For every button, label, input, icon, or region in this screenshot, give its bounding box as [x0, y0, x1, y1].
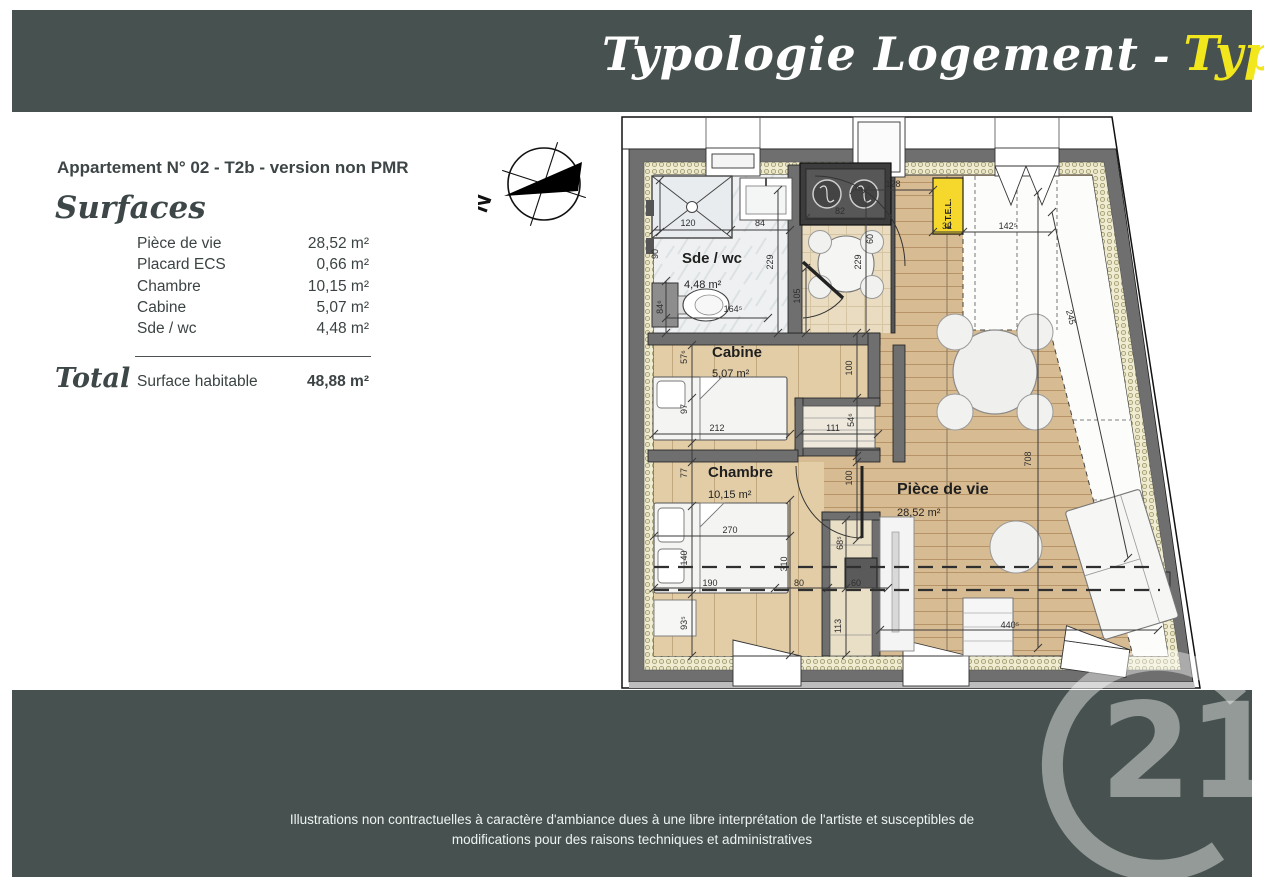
- room-area: 28,52 m²: [897, 507, 941, 519]
- table-row: Sde / wc 4,48 m²: [137, 318, 369, 339]
- chair: [861, 276, 884, 299]
- table-row: Pièce de vie 28,52 m²: [137, 233, 369, 254]
- table-row: Cabine 5,07 m²: [137, 297, 369, 318]
- row-value: 28,52 m²: [308, 233, 369, 254]
- total-heading: Total: [55, 363, 130, 394]
- pouf: [990, 521, 1042, 573]
- total-label: Surface habitable: [137, 373, 258, 391]
- pillow: [657, 381, 685, 408]
- title-main: Typologie Logement: [602, 27, 1139, 81]
- chair: [937, 394, 973, 430]
- dimension-label: 90: [650, 249, 660, 259]
- room-name: Sde / wc: [682, 250, 742, 267]
- dimension-label: 229: [765, 254, 775, 269]
- dimension-label: 93⁵: [679, 616, 689, 630]
- shower-valve: [646, 200, 654, 216]
- dimension-label: 60: [851, 578, 861, 588]
- dimension-label: 270: [722, 525, 737, 535]
- chair: [1017, 394, 1053, 430]
- dimension-label: 105: [792, 288, 802, 303]
- dimension-label: 310: [779, 556, 789, 571]
- disclaimer-text: Illustrations non contractuelles à carac…: [12, 810, 1252, 849]
- row-label: Chambre: [137, 276, 201, 297]
- page-title: Typologie Logement-Type 2b: [602, 26, 1264, 82]
- page: Typologie Logement-Type 2b Appartement N…: [0, 0, 1264, 891]
- window-bottom-1: [733, 656, 801, 686]
- table-row: Placard ECS 0,66 m²: [137, 254, 369, 275]
- dimension-label: 190: [702, 578, 717, 588]
- footer-band: Illustrations non contractuelles à carac…: [12, 690, 1252, 877]
- dimension-label: 77: [679, 468, 689, 478]
- dimension-label: 212: [709, 423, 724, 433]
- row-value: 0,66 m²: [316, 254, 369, 275]
- title-type-label: Type 2b: [1184, 26, 1264, 82]
- row-label: Sde / wc: [137, 318, 196, 339]
- row-value: 5,07 m²: [316, 297, 369, 318]
- nightstand: [654, 600, 696, 636]
- dimension-label: 142⁵: [999, 221, 1018, 231]
- dimension-label: 54⁶: [846, 413, 856, 427]
- room-name: Cabine: [712, 344, 762, 361]
- pillow: [658, 508, 684, 542]
- dimension-label: 32: [942, 221, 952, 231]
- surface-table: Pièce de vie 28,52 m² Placard ECS 0,66 m…: [137, 233, 369, 339]
- window-bottom-2: [903, 656, 969, 686]
- dimension-label: 68⁵: [835, 536, 845, 550]
- dimension-label: 82: [835, 206, 845, 216]
- dimension-label: 708: [1023, 451, 1033, 466]
- surfaces-heading: Surfaces: [55, 190, 206, 226]
- dimension-label: 84: [755, 218, 765, 228]
- row-value: 4,48 m²: [316, 318, 369, 339]
- dimension-label: 100: [844, 470, 854, 485]
- dimension-label: 111: [826, 423, 840, 433]
- dimension-label: 229: [853, 254, 863, 269]
- disclaimer-line: modifications pour des raisons technique…: [12, 830, 1252, 850]
- dimension-label: 97: [679, 404, 689, 414]
- dimension-label: 100: [844, 360, 854, 375]
- floor-plan: E.T.E.L. Sde / wc 4,48 m² Cabine 5,07 m²…: [600, 108, 1264, 708]
- chair: [1017, 314, 1053, 350]
- chair: [809, 231, 832, 254]
- dimension-label: 164⁵: [724, 304, 743, 314]
- dimension-label: 80: [794, 578, 804, 588]
- dimension-label: 440⁵: [1001, 620, 1020, 630]
- room-name: Pièce de vie: [897, 481, 989, 498]
- chair: [937, 314, 973, 350]
- dimension-label: 120: [680, 218, 695, 228]
- dimension-label: 60: [865, 234, 875, 244]
- row-label: Pièce de vie: [137, 233, 221, 254]
- row-label: Placard ECS: [137, 254, 226, 275]
- table-row: Chambre 10,15 m²: [137, 276, 369, 297]
- dimension-label: 128: [885, 179, 900, 189]
- compass-icon: N: [478, 136, 594, 236]
- total-row: Surface habitable 48,88 m²: [137, 373, 369, 391]
- room-area: 4,48 m²: [684, 279, 722, 291]
- disclaimer-line: Illustrations non contractuelles à carac…: [12, 810, 1252, 830]
- total-value: 48,88 m²: [307, 373, 369, 391]
- room-name: Chambre: [708, 464, 773, 481]
- header-band: Typologie Logement-Type 2b: [12, 10, 1252, 112]
- row-label: Cabine: [137, 297, 186, 318]
- apartment-title: Appartement N° 02 - T2b - version non PM…: [57, 158, 409, 178]
- room-area: 10,15 m²: [708, 489, 752, 501]
- room-area: 5,07 m²: [712, 368, 750, 380]
- dimension-label: 140: [679, 550, 689, 565]
- table-divider: [135, 356, 371, 357]
- title-separator: -: [1153, 33, 1170, 80]
- dimension-label: 57⁶: [679, 350, 689, 364]
- compass-north-label: N: [478, 191, 498, 217]
- dimension-label: 84⁶: [655, 300, 665, 314]
- dimension-label: 113: [833, 619, 843, 633]
- row-value: 10,15 m²: [308, 276, 369, 297]
